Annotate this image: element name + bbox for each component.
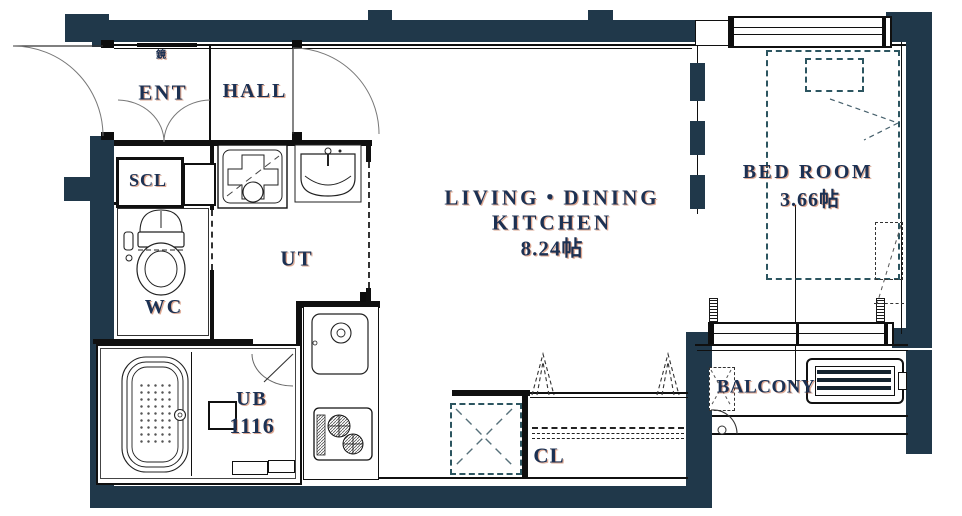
- room-ldk-label-2: KITCHEN: [492, 213, 612, 234]
- ub-counter-2: [268, 460, 295, 473]
- mirror-bar: [137, 43, 197, 47]
- room-balcony-label: BALCONY: [717, 378, 816, 397]
- scl-side-box: [183, 163, 216, 206]
- wall-left-tab: [64, 177, 92, 201]
- room-ent-label: ENT: [138, 83, 187, 104]
- partition-post: [690, 121, 705, 155]
- partition-post: [690, 175, 705, 209]
- balcony-drain-icon: [708, 408, 744, 436]
- window-end-cap: [882, 18, 886, 46]
- toilet-icon: [120, 206, 212, 298]
- bed-pillow: [805, 58, 864, 92]
- bedroom-corner-diagonal: [872, 220, 904, 308]
- wall-top-protrusion-1: [368, 10, 392, 22]
- washing-machine-pan-icon: [217, 144, 289, 210]
- room-scl-label: SCL: [129, 171, 167, 189]
- balcony-window: [708, 322, 894, 346]
- cl-top-line-2: [530, 397, 688, 398]
- room-bedroom-label: BED ROOM: [743, 162, 874, 182]
- wall-right-upper: [906, 40, 932, 335]
- ent-storage-arcs-icon: [116, 98, 212, 144]
- room-ub-label: UB: [236, 389, 268, 409]
- room-ldk-label-1: LIVING・DINING: [444, 188, 659, 209]
- window-end-cap: [730, 18, 734, 46]
- closet-folding-doors-icon: [528, 350, 688, 396]
- cl-shelf-line-1: [532, 433, 684, 434]
- ub-door-arc: [248, 350, 298, 390]
- fridge-wall-h: [452, 390, 530, 396]
- partition-post: [690, 63, 705, 101]
- mirror-label: 鏡: [156, 51, 166, 61]
- window-mullion: [796, 324, 799, 344]
- ac-unit-bar: [817, 386, 891, 390]
- ac-unit-bar: [817, 378, 891, 382]
- ac-unit-tab: [898, 372, 907, 390]
- interior-top-line-2: [114, 48, 692, 49]
- window-sill-line-2: [697, 350, 908, 351]
- bedroom-corner-dash-line: [874, 303, 904, 304]
- ub-counter-1: [232, 461, 268, 475]
- entrance-door-arc: [6, 40, 118, 142]
- ut-door-post-bottom: [366, 288, 371, 302]
- window-inner-line: [713, 333, 887, 334]
- cl-hanger-rod: [532, 427, 684, 429]
- room-ut-label: UT: [280, 249, 313, 270]
- room-ub-size-label: 1116: [229, 415, 275, 437]
- bathtub-dot-grid: [138, 382, 174, 446]
- wall-top-right: [886, 12, 932, 42]
- ldk-bottom-line: [378, 477, 688, 479]
- hall-door-arc: [286, 42, 384, 140]
- ac-outdoor-unit-icon: [806, 358, 904, 404]
- wall-gap-segment: [695, 20, 730, 46]
- floor-plan: 鏡 ENT HALL SCL WC UT UB 1116 LIVING・DINI…: [0, 0, 962, 516]
- room-cl-label: CL: [533, 446, 564, 467]
- stove-icon: [312, 406, 374, 462]
- ub-partition-line: [191, 352, 192, 476]
- window-end-cap: [884, 324, 888, 344]
- bedroom-top-window: [728, 16, 892, 48]
- washbasin-icon: [294, 144, 362, 204]
- cl-shelf-line-2: [532, 438, 684, 439]
- window-sill-line-1: [695, 344, 908, 346]
- ut-door-post-top: [366, 146, 371, 162]
- room-hall-label: HALL: [223, 81, 288, 101]
- wall-top-main: [65, 20, 695, 42]
- room-wc-label: WC: [145, 297, 183, 317]
- bed-fold-lines: [824, 92, 904, 144]
- wall-bottom: [90, 486, 712, 508]
- room-ldk-area-label: 8.24帖: [521, 239, 584, 260]
- kitchen-sink-icon: [308, 308, 372, 378]
- refrigerator-x: [450, 403, 518, 471]
- fridge-wall-v: [522, 390, 528, 478]
- wall-top-protrusion-2: [588, 10, 613, 22]
- wall-right-balcony: [906, 350, 932, 454]
- ac-unit-bar: [817, 370, 891, 374]
- window-inner-line: [734, 34, 886, 35]
- window-inner-line: [734, 27, 886, 28]
- window-end-cap: [710, 324, 714, 344]
- ut-sliding-door: [368, 162, 370, 288]
- room-bedroom-area-label: 3.66帖: [780, 190, 840, 210]
